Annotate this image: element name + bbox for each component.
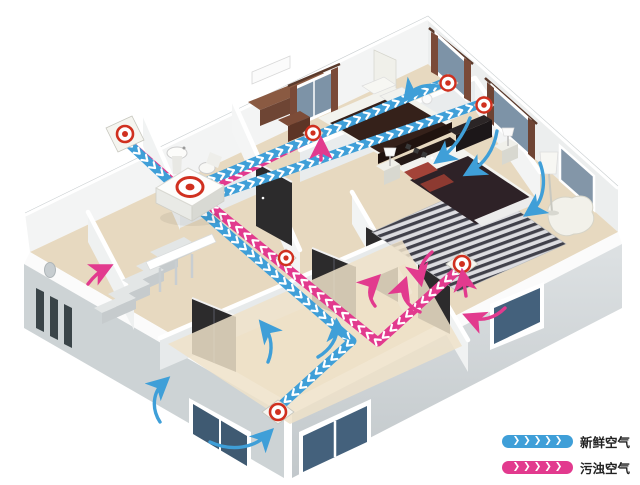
wall-duct-hole bbox=[45, 263, 56, 278]
legend-label-stale-air: 污浊空气 bbox=[580, 458, 630, 477]
legend: ❯❯❯❯❯ 新鲜空气 ❯❯❯❯❯ 污浊空气 bbox=[502, 432, 630, 477]
isometric-house-scene bbox=[0, 0, 640, 485]
stale-air-arrow-band-icon: ❯❯❯❯❯ bbox=[502, 461, 573, 474]
ac-unit bbox=[252, 56, 290, 84]
legend-row-stale-air: ❯❯❯❯❯ 污浊空气 bbox=[502, 458, 630, 477]
legend-row-fresh-air: ❯❯❯❯❯ 新鲜空气 bbox=[502, 432, 630, 451]
armchair bbox=[548, 196, 594, 236]
fresh-air-arrow-band-icon: ❯❯❯❯❯ bbox=[502, 435, 573, 448]
legend-label-fresh-air: 新鲜空气 bbox=[580, 432, 630, 451]
ventilation-diagram: ❯❯❯❯❯ 新鲜空气 ❯❯❯❯❯ 污浊空气 bbox=[0, 0, 640, 485]
